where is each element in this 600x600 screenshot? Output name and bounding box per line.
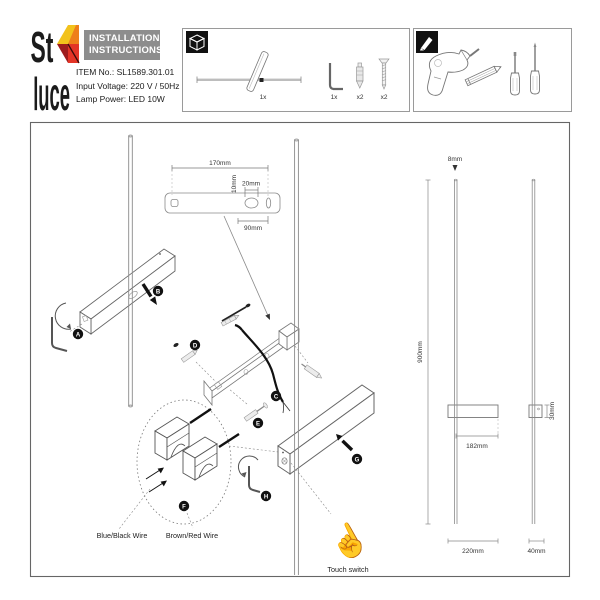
step-badge-e: E [253, 418, 263, 428]
step-badge-b: B [153, 286, 163, 296]
step-badge-d: D [190, 340, 200, 350]
dim-lamp-height: 900mm [417, 341, 424, 363]
step-badge-a: A [73, 329, 83, 339]
diagram-border [31, 123, 570, 577]
svg-text:D: D [193, 343, 198, 349]
step-badge-c: C [271, 391, 281, 401]
dim-bracket-width: 170mm [209, 160, 231, 167]
dim-body-height: 30mm [549, 402, 556, 420]
dim-body-width: 182mm [466, 443, 488, 450]
svg-text:B: B [156, 289, 161, 295]
svg-text:A: A [76, 332, 81, 338]
svg-text:E: E [256, 421, 260, 427]
svg-text:F: F [182, 504, 186, 510]
step-badge-g: G [352, 454, 362, 464]
dim-side-width: 40mm [527, 548, 545, 555]
blue-black-wire-label: Blue/Black Wire [97, 531, 148, 540]
dim-front-total-width: 220mm [462, 548, 484, 555]
dim-hole-width: 20mm [242, 181, 260, 188]
dim-rod-diameter: 8mm [448, 156, 462, 163]
svg-text:C: C [274, 394, 279, 400]
dim-bracket-offset: 90mm [244, 225, 262, 232]
step-badge-h: H [261, 491, 271, 501]
dim-hole-height: 10mm [231, 175, 238, 193]
svg-text:G: G [355, 457, 360, 463]
installation-diagram: 170mm 20mm 10mm 90mm [0, 0, 600, 600]
brown-red-wire-label: Brown/Red Wire [166, 531, 218, 540]
step-badge-f: F [179, 501, 189, 511]
svg-text:H: H [264, 494, 268, 500]
touch-switch-label: Touch switch [327, 565, 368, 574]
